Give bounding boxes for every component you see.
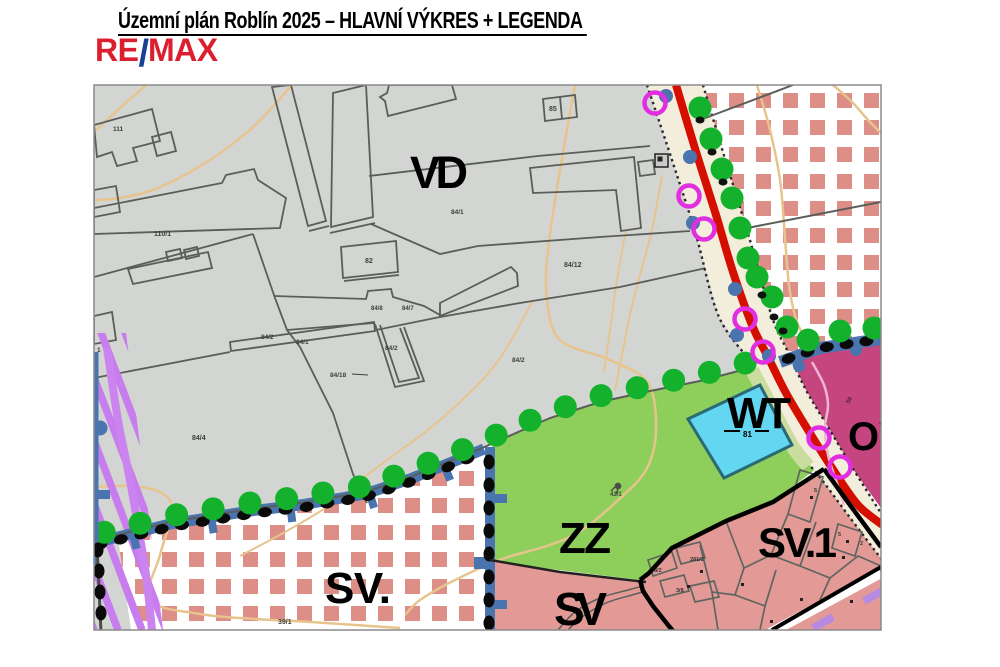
svg-text:84/1: 84/1 [451, 209, 464, 216]
svg-text:5: 5 [838, 532, 841, 538]
svg-text:84/8: 84/8 [371, 306, 383, 312]
svg-text:281/2: 281/2 [690, 557, 704, 563]
svg-text:111: 111 [113, 126, 124, 133]
svg-text:VD: VD [410, 147, 468, 198]
svg-text:84/1: 84/1 [296, 339, 309, 346]
svg-text:3/8: 3/8 [676, 588, 684, 594]
svg-text:84/18: 84/18 [330, 372, 347, 379]
svg-text:ZZ: ZZ [559, 514, 611, 563]
svg-text:84/12: 84/12 [564, 262, 582, 269]
svg-text:85: 85 [549, 106, 557, 113]
svg-text:82: 82 [365, 258, 373, 265]
svg-text:84/4: 84/4 [192, 435, 206, 442]
svg-text:84/2: 84/2 [385, 345, 398, 352]
svg-text:SV.1: SV.1 [758, 519, 837, 566]
svg-text:39/1: 39/1 [278, 619, 292, 626]
svg-text:SV.: SV. [325, 564, 391, 613]
svg-text:2: 2 [860, 541, 863, 547]
svg-text:84/2: 84/2 [261, 334, 274, 341]
svg-text:OV: OV [848, 415, 906, 459]
svg-text:84/7: 84/7 [402, 306, 414, 312]
svg-text:5: 5 [814, 488, 817, 494]
svg-text:81: 81 [743, 430, 752, 439]
svg-text:SV: SV [554, 583, 607, 635]
svg-text:84/2: 84/2 [512, 357, 525, 364]
svg-text:110/1: 110/1 [154, 231, 171, 238]
